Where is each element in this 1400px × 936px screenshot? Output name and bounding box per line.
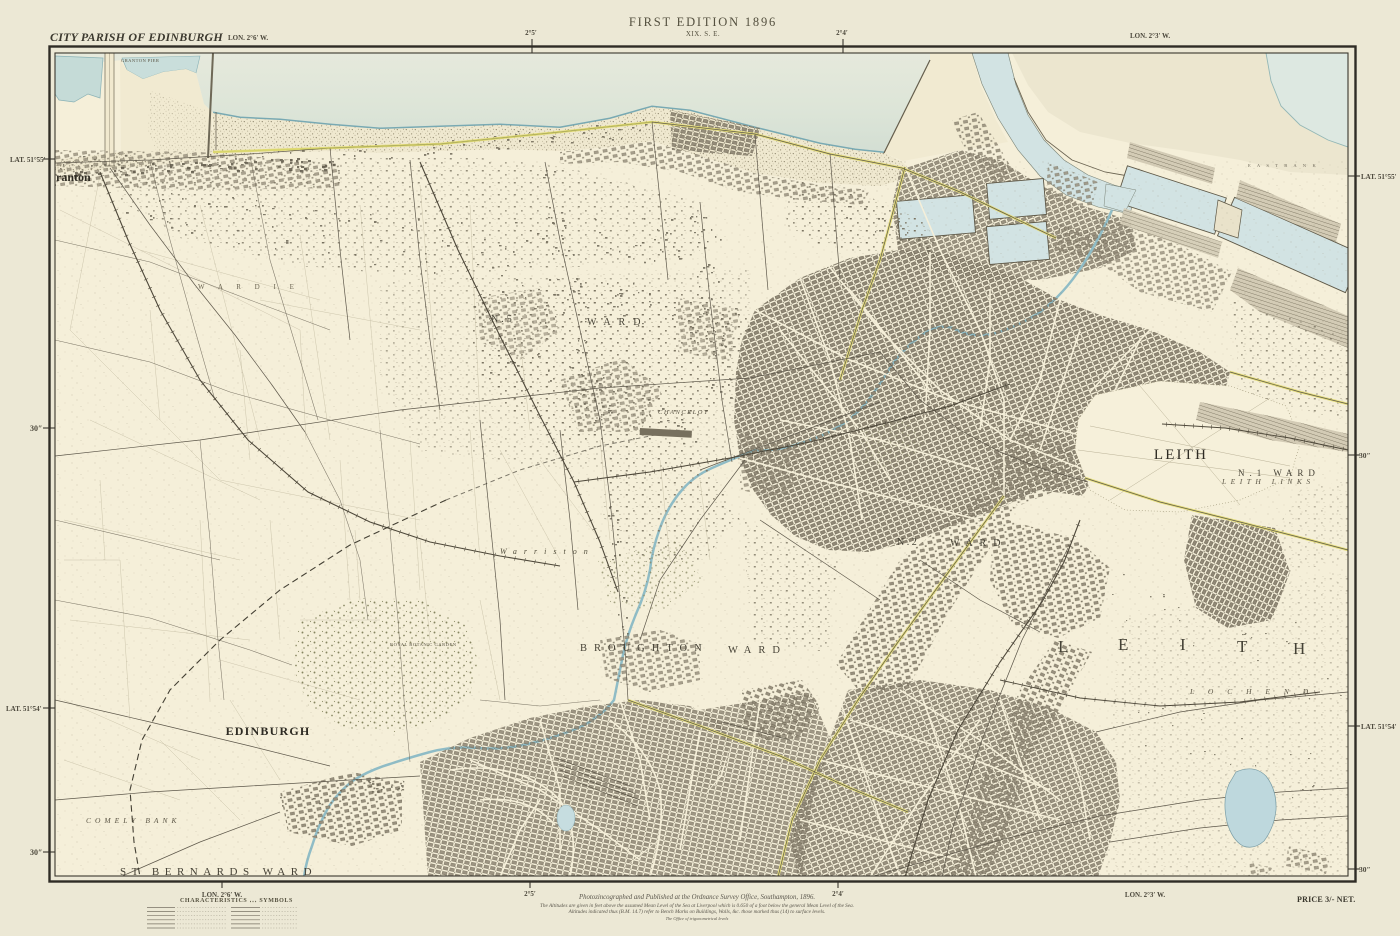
svg-text:Photozincographed and Publishe: Photozincographed and Published at the O… xyxy=(578,894,815,901)
svg-text:LON. 2°6′ W.: LON. 2°6′ W. xyxy=(228,34,268,42)
svg-text:H: H xyxy=(1293,639,1305,658)
svg-text:L: L xyxy=(1058,637,1068,656)
svg-text:LAT. 51°54′: LAT. 51°54′ xyxy=(1361,723,1397,731)
svg-text:L O C H E N D: L O C H E N D xyxy=(1189,687,1314,696)
svg-text:2°4′: 2°4′ xyxy=(832,890,844,898)
svg-text:2°5′: 2°5′ xyxy=(525,29,537,37)
svg-text:T: T xyxy=(1237,637,1248,656)
svg-text:LON. 2°3′ W.: LON. 2°3′ W. xyxy=(1130,32,1170,40)
svg-text:WARD: WARD xyxy=(587,317,648,328)
svg-text:2°4′: 2°4′ xyxy=(836,29,848,37)
svg-text:The Office of trigonometrical: The Office of trigonometrical levels xyxy=(666,916,729,921)
svg-text:GRANTON PIER: GRANTON PIER xyxy=(121,58,160,63)
svg-text:N.2: N.2 xyxy=(897,537,919,548)
svg-text:CHARACTERISTICS ․․․ SYMBOLS: CHARACTERISTICS ․․․ SYMBOLS xyxy=(180,898,293,904)
svg-text:WARD: WARD xyxy=(950,538,1007,549)
svg-text:COMELY BANK: COMELY BANK xyxy=(86,816,180,825)
svg-text:LAT. 51°54′: LAT. 51°54′ xyxy=(6,705,42,713)
svg-text:I: I xyxy=(1180,635,1186,654)
svg-text:2°5′: 2°5′ xyxy=(524,890,536,898)
svg-text:EDINBURGH: EDINBURGH xyxy=(226,724,311,738)
svg-text:LAT. 51°55′: LAT. 51°55′ xyxy=(10,156,46,164)
svg-text:LEITH: LEITH xyxy=(1154,447,1208,463)
svg-text:LAT. 51°55′: LAT. 51°55′ xyxy=(1361,173,1397,181)
svg-text:CHANCELOT: CHANCELOT xyxy=(658,409,709,416)
svg-text:FIRST EDITION 1896: FIRST EDITION 1896 xyxy=(629,15,777,29)
svg-text:30″: 30″ xyxy=(1359,451,1371,460)
svg-text:Warriston: Warriston xyxy=(500,547,595,556)
svg-text:30″: 30″ xyxy=(30,424,42,433)
svg-text:LON. 2°3′ W.: LON. 2°3′ W. xyxy=(1125,891,1165,899)
svg-text:WARD: WARD xyxy=(728,645,787,656)
svg-text:W A R D I E: W A R D I E xyxy=(198,283,300,291)
svg-text:The Altitudes are given in fee: The Altitudes are given in feet above th… xyxy=(540,902,854,909)
svg-text:ranton: ranton xyxy=(56,170,91,184)
svg-text:N.5: N.5 xyxy=(491,314,515,325)
svg-text:E: E xyxy=(1118,635,1128,654)
svg-text:PRICE 3/- NET.: PRICE 3/- NET. xyxy=(1297,895,1355,904)
svg-text:30″: 30″ xyxy=(1359,865,1371,874)
svg-text:CITY PARISH OF EDINBURGH: CITY PARISH OF EDINBURGH xyxy=(50,30,223,44)
svg-text:30″: 30″ xyxy=(30,848,42,857)
svg-text:XIX. S. E.: XIX. S. E. xyxy=(686,30,720,38)
svg-text:Altitudes indicated thus (B.M.: Altitudes indicated thus (B.M. 14.7) ref… xyxy=(568,908,826,915)
svg-text:LEITH LINKS: LEITH LINKS xyxy=(1221,477,1315,486)
svg-text:BROUGHTON: BROUGHTON xyxy=(580,643,709,654)
